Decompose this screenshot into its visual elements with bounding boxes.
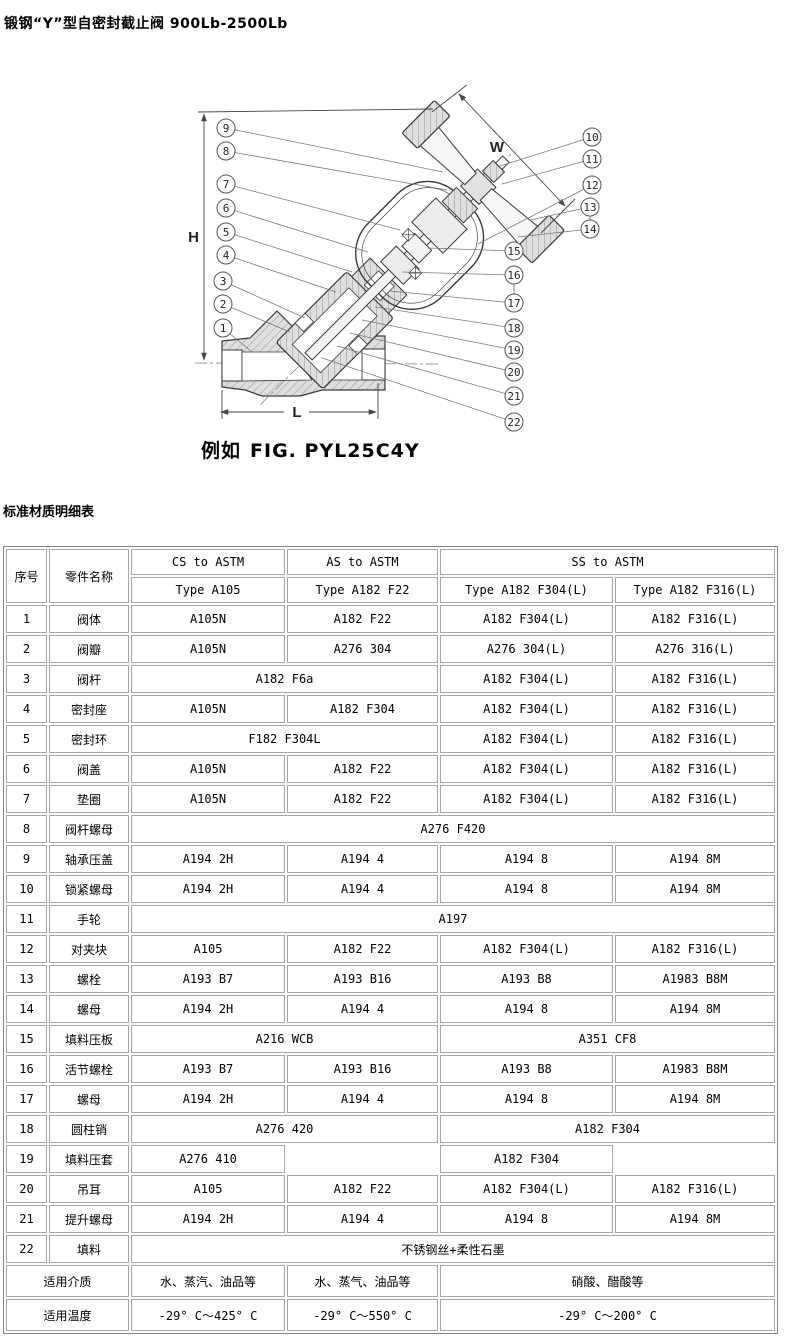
material-cell: A193 B16 <box>287 1055 438 1083</box>
material-cell: A105N <box>131 785 285 813</box>
material-cell: A182 F316(L) <box>615 935 775 963</box>
material-cell: A194 4 <box>287 845 438 873</box>
material-cell: A182 F22 <box>287 785 438 813</box>
part-name-cell: 填料压板 <box>49 1025 129 1053</box>
row-number-cell: 2 <box>6 635 47 663</box>
section-heading: 标准材质明细表 <box>3 501 94 520</box>
header-group-cs: CS to ASTM <box>131 549 285 575</box>
part-name-cell: 对夹块 <box>49 935 129 963</box>
material-cell: A194 4 <box>287 875 438 903</box>
svg-text:20: 20 <box>507 366 520 379</box>
dim-label-w: W <box>490 139 505 156</box>
footer-value-cell: -29° C～550° C <box>287 1299 438 1331</box>
table-row: 9轴承压盖A194 2HA194 4A194 8A194 8M <box>6 845 775 873</box>
table-row: 10锁紧螺母A194 2HA194 4A194 8A194 8M <box>6 875 775 903</box>
svg-text:8: 8 <box>223 145 230 158</box>
row-number-cell: 10 <box>6 875 47 903</box>
part-name-cell: 填料 <box>49 1235 129 1263</box>
material-cell: A1983 B8M <box>615 1055 775 1083</box>
material-cell: A194 8 <box>440 1085 613 1113</box>
row-number-cell: 5 <box>6 725 47 753</box>
svg-text:10: 10 <box>585 131 598 144</box>
material-cell: F182 F304L <box>131 725 438 753</box>
material-cell: A182 F304 <box>287 695 438 723</box>
svg-text:16: 16 <box>507 269 520 282</box>
material-cell: A216 WCB <box>131 1025 438 1053</box>
material-cell: A182 F316(L) <box>615 605 775 633</box>
material-cell: A194 2H <box>131 1085 285 1113</box>
svg-text:14: 14 <box>583 223 597 236</box>
row-number-cell: 15 <box>6 1025 47 1053</box>
table-row: 12对夹块A105A182 F22A182 F304(L)A182 F316(L… <box>6 935 775 963</box>
svg-text:5: 5 <box>223 226 230 239</box>
part-name-cell: 手轮 <box>49 905 129 933</box>
row-number-cell: 13 <box>6 965 47 993</box>
footer-value-cell: -29° C～200° C <box>440 1299 775 1331</box>
header-type-a105: Type A105 <box>131 577 285 603</box>
part-name-cell: 螺母 <box>49 995 129 1023</box>
material-cell: A182 F316(L) <box>615 1175 775 1203</box>
material-cell: A182 F304(L) <box>440 665 613 693</box>
table-row: 20吊耳A105A182 F22A182 F304(L)A182 F316(L) <box>6 1175 775 1203</box>
material-cell: 不锈钢丝+柔性石墨 <box>131 1235 775 1263</box>
material-cell: A194 8M <box>615 1205 775 1233</box>
part-name-cell: 阀瓣 <box>49 635 129 663</box>
table-row: 4密封座A105NA182 F304A182 F304(L)A182 F316(… <box>6 695 775 723</box>
svg-text:19: 19 <box>507 344 520 357</box>
header-group-ss: SS to ASTM <box>440 549 775 575</box>
callout-6: 6 <box>217 199 368 252</box>
svg-text:9: 9 <box>223 122 230 135</box>
footer-label-cell: 适用介质 <box>6 1265 129 1297</box>
callout-7: 7 <box>217 175 400 230</box>
callout-18: 18 <box>375 307 523 337</box>
material-cell: A194 8M <box>615 845 775 873</box>
table-row: 15填料压板A216 WCBA351 CF8 <box>6 1025 775 1053</box>
material-cell: A194 8 <box>440 845 613 873</box>
svg-text:11: 11 <box>585 153 598 166</box>
table-footer-row: 适用介质水、蒸汽、油品等水、蒸气、油品等硝酸、醋酸等 <box>6 1265 775 1297</box>
material-cell: A182 F304 <box>440 1115 775 1143</box>
material-cell: A182 F304(L) <box>440 605 613 633</box>
svg-text:22: 22 <box>507 416 520 429</box>
callout-4: 4 <box>217 246 336 292</box>
part-name-cell: 阀盖 <box>49 755 129 783</box>
table-row: 13螺栓A193 B7A193 B16A193 B8A1983 B8M <box>6 965 775 993</box>
table-row: 11手轮A197 <box>6 905 775 933</box>
header-group-as: AS to ASTM <box>287 549 438 575</box>
material-cell: A105 <box>131 1175 285 1203</box>
part-name-cell: 提升螺母 <box>49 1205 129 1233</box>
part-name-cell: 圆柱销 <box>49 1115 129 1143</box>
valve-cross-section-drawing: H L W 1234567891011121314151617181920212… <box>180 85 650 435</box>
material-cell: A193 B16 <box>287 965 438 993</box>
page-title: 锻钢“Y”型自密封截止阀 900Lb-2500Lb <box>4 13 288 33</box>
material-cell: A194 8 <box>440 875 613 903</box>
part-name-cell: 螺母 <box>49 1085 129 1113</box>
table-header-row-groups: 序号 零件名称 CS to ASTM AS to ASTM SS to ASTM <box>6 549 775 575</box>
row-number-cell: 18 <box>6 1115 47 1143</box>
row-number-cell: 8 <box>6 815 47 843</box>
table-row: 5密封环F182 F304LA182 F304(L)A182 F316(L) <box>6 725 775 753</box>
table-row: 21提升螺母A194 2HA194 4A194 8A194 8M <box>6 1205 775 1233</box>
table-footer-row: 适用温度-29° C～425° C-29° C～550° C-29° C～200… <box>6 1299 775 1331</box>
material-cell: A105N <box>131 695 285 723</box>
callout-5: 5 <box>217 223 352 272</box>
row-number-cell: 21 <box>6 1205 47 1233</box>
dim-label-l: L <box>292 404 301 421</box>
material-cell: A182 F304(L) <box>440 695 613 723</box>
material-cell: A182 F304(L) <box>440 935 613 963</box>
material-cell: A105N <box>131 635 285 663</box>
dim-label-h: H <box>188 229 199 246</box>
part-name-cell: 垫圈 <box>49 785 129 813</box>
material-cell: A193 B8 <box>440 1055 613 1083</box>
table-row: 8阀杆螺母A276 F420 <box>6 815 775 843</box>
material-cell: A182 F304(L) <box>440 725 613 753</box>
row-number-cell: 4 <box>6 695 47 723</box>
material-cell: A182 F304(L) <box>440 785 613 813</box>
svg-text:21: 21 <box>507 390 520 403</box>
material-cell: A182 F22 <box>287 755 438 783</box>
row-number-cell: 22 <box>6 1235 47 1263</box>
header-part-name: 零件名称 <box>49 549 129 603</box>
svg-text:13: 13 <box>583 201 596 214</box>
material-cell: A276 316(L) <box>615 635 775 663</box>
material-cell: A182 F316(L) <box>615 695 775 723</box>
material-cell: A182 F316(L) <box>615 755 775 783</box>
header-index: 序号 <box>6 549 47 603</box>
material-cell: A182 F22 <box>287 935 438 963</box>
material-cell: A182 F304 <box>440 1145 613 1173</box>
row-number-cell: 16 <box>6 1055 47 1083</box>
material-cell: A182 F316(L) <box>615 665 775 693</box>
material-cell: A276 F420 <box>131 815 775 843</box>
row-number-cell: 1 <box>6 605 47 633</box>
material-cell: A194 4 <box>287 1085 438 1113</box>
svg-text:7: 7 <box>223 178 230 191</box>
header-type-a182f22: Type A182 F22 <box>287 577 438 603</box>
figure-caption: 例如FIG. PYL25C4Y <box>201 436 420 463</box>
row-number-cell: 7 <box>6 785 47 813</box>
material-cell: A276 304 <box>287 635 438 663</box>
material-cell: A194 2H <box>131 1205 285 1233</box>
material-cell: A194 8 <box>440 1205 613 1233</box>
row-number-cell: 20 <box>6 1175 47 1203</box>
materials-table: 序号 零件名称 CS to ASTM AS to ASTM SS to ASTM… <box>3 546 778 1334</box>
material-cell: A276 420 <box>131 1115 438 1143</box>
material-cell: A182 F6a <box>131 665 438 693</box>
material-cell: A194 2H <box>131 995 285 1023</box>
part-name-cell: 阀杆 <box>49 665 129 693</box>
material-cell: A1983 B8M <box>615 965 775 993</box>
material-cell: A276 410 <box>131 1145 285 1173</box>
figure-caption-code: FIG. PYL25C4Y <box>250 440 420 462</box>
table-row: 16活节螺栓A193 B7A193 B16A193 B8A1983 B8M <box>6 1055 775 1083</box>
footer-label-cell: 适用温度 <box>6 1299 129 1331</box>
empty-cell <box>615 1145 775 1173</box>
part-name-cell: 阀杆螺母 <box>49 815 129 843</box>
part-name-cell: 轴承压盖 <box>49 845 129 873</box>
material-cell: A182 F316(L) <box>615 785 775 813</box>
row-number-cell: 11 <box>6 905 47 933</box>
valve-diagram: H L W 1234567891011121314151617181920212… <box>180 85 650 435</box>
svg-text:2: 2 <box>220 298 227 311</box>
header-type-a182f304: Type A182 F304(L) <box>440 577 613 603</box>
part-name-cell: 活节螺栓 <box>49 1055 129 1083</box>
row-number-cell: 17 <box>6 1085 47 1113</box>
row-number-cell: 14 <box>6 995 47 1023</box>
footer-value-cell: -29° C～425° C <box>131 1299 285 1331</box>
material-cell: A194 2H <box>131 875 285 903</box>
material-cell: A194 8M <box>615 875 775 903</box>
material-cell: A194 4 <box>287 1205 438 1233</box>
svg-text:6: 6 <box>223 202 230 215</box>
material-cell: A182 F316(L) <box>615 725 775 753</box>
row-number-cell: 19 <box>6 1145 47 1173</box>
svg-text:3: 3 <box>220 275 227 288</box>
material-cell: A182 F22 <box>287 605 438 633</box>
footer-value-cell: 水、蒸汽、油品等 <box>131 1265 285 1297</box>
material-cell: A194 8M <box>615 995 775 1023</box>
figure-caption-prefix: 例如 <box>201 440 241 462</box>
material-cell: A194 8M <box>615 1085 775 1113</box>
table-row: 17螺母A194 2HA194 4A194 8A194 8M <box>6 1085 775 1113</box>
material-cell: A105N <box>131 755 285 783</box>
svg-text:1: 1 <box>220 322 227 335</box>
svg-text:4: 4 <box>223 249 230 262</box>
material-cell: A194 8 <box>440 995 613 1023</box>
material-cell: A193 B7 <box>131 965 285 993</box>
material-cell: A276 304(L) <box>440 635 613 663</box>
part-name-cell: 密封座 <box>49 695 129 723</box>
table-row: 7垫圈A105NA182 F22A182 F304(L)A182 F316(L) <box>6 785 775 813</box>
material-cell: A182 F304(L) <box>440 1175 613 1203</box>
part-name-cell: 填料压套 <box>49 1145 129 1173</box>
table-row: 19填料压套A276 410A182 F304 <box>6 1145 775 1173</box>
material-cell: A194 2H <box>131 845 285 873</box>
row-number-cell: 9 <box>6 845 47 873</box>
part-name-cell: 吊耳 <box>49 1175 129 1203</box>
header-type-a182f316: Type A182 F316(L) <box>615 577 775 603</box>
row-number-cell: 3 <box>6 665 47 693</box>
table-row: 6阀盖A105NA182 F22A182 F304(L)A182 F316(L) <box>6 755 775 783</box>
footer-value-cell: 水、蒸气、油品等 <box>287 1265 438 1297</box>
table-row: 3阀杆A182 F6aA182 F304(L)A182 F316(L) <box>6 665 775 693</box>
footer-value-cell: 硝酸、醋酸等 <box>440 1265 775 1297</box>
row-number-cell: 12 <box>6 935 47 963</box>
table-row: 1阀体A105NA182 F22A182 F304(L)A182 F316(L) <box>6 605 775 633</box>
material-cell: A105 <box>131 935 285 963</box>
row-number-cell: 6 <box>6 755 47 783</box>
part-name-cell: 密封环 <box>49 725 129 753</box>
svg-text:17: 17 <box>507 297 520 310</box>
material-cell: A182 F22 <box>287 1175 438 1203</box>
part-name-cell: 阀体 <box>49 605 129 633</box>
material-cell: A193 B7 <box>131 1055 285 1083</box>
svg-text:12: 12 <box>585 179 598 192</box>
material-cell: A351 CF8 <box>440 1025 775 1053</box>
table-row: 14螺母A194 2HA194 4A194 8A194 8M <box>6 995 775 1023</box>
svg-text:15: 15 <box>507 245 520 258</box>
svg-text:18: 18 <box>507 322 520 335</box>
part-name-cell: 螺栓 <box>49 965 129 993</box>
table-row: 18圆柱销A276 420A182 F304 <box>6 1115 775 1143</box>
table-row: 2阀瓣A105NA276 304A276 304(L)A276 316(L) <box>6 635 775 663</box>
material-cell: A194 4 <box>287 995 438 1023</box>
material-cell: A193 B8 <box>440 965 613 993</box>
empty-cell <box>287 1145 438 1173</box>
part-name-cell: 锁紧螺母 <box>49 875 129 903</box>
material-cell: A197 <box>131 905 775 933</box>
material-cell: A105N <box>131 605 285 633</box>
material-cell: A182 F304(L) <box>440 755 613 783</box>
table-row: 22填料不锈钢丝+柔性石墨 <box>6 1235 775 1263</box>
